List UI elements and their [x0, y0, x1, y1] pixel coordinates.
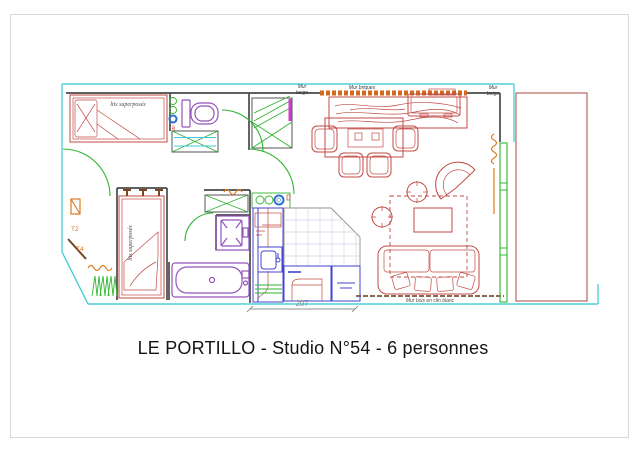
hob-counter: [252, 193, 290, 208]
window-right: [500, 143, 507, 302]
wc: 30: [170, 98, 219, 153]
doors: [63, 110, 294, 241]
radiator-entry: [88, 266, 112, 271]
closet-door-arc: [249, 149, 294, 194]
mur-beige-right-2: beige: [487, 91, 499, 97]
kitchen: [252, 193, 360, 302]
sofa: [378, 246, 479, 294]
pantry-corner: [284, 208, 360, 266]
bench: [329, 97, 467, 128]
bunk-bed-side-label: lits superposés: [128, 225, 134, 261]
bedroom-door-arc: [63, 149, 110, 196]
base-cabinets: [284, 266, 360, 301]
bunk-bed-side: lits superposés: [119, 190, 164, 298]
armchair: [436, 162, 475, 199]
entry-closet: [252, 96, 292, 148]
bathroom: [172, 216, 249, 297]
mur-bois-label: Mur bois en clin blanc: [406, 298, 455, 304]
type-t4-label: T4: [76, 246, 84, 253]
page-title: LE PORTILLO - Studio N°54 - 6 personnes: [0, 338, 626, 359]
coffee-table: [414, 208, 452, 232]
bathtub: [172, 263, 249, 297]
living-area: [371, 89, 479, 294]
vanity-sink: [216, 216, 249, 250]
entry-door: [71, 199, 80, 214]
floorplan-page: lits superposés 30: [0, 0, 640, 452]
kitchen-sink: [258, 247, 282, 272]
entry-area: T2 T4: [68, 199, 117, 296]
stool-1: [406, 181, 428, 203]
dining-area: [312, 97, 467, 177]
toilet-tank: [182, 100, 190, 127]
mur-briques-label: Mur briques: [349, 85, 376, 91]
radiator-right: [492, 134, 497, 214]
balcony-outline: [516, 93, 587, 301]
coat-hooks: [123, 190, 163, 196]
plants: [92, 276, 117, 296]
bathroom-door-arc: [185, 213, 213, 241]
type-t2-label: T2: [71, 226, 79, 233]
bunk-bed-top: lits superposés: [70, 95, 167, 142]
mur-beige-left-2: beige: [296, 90, 308, 96]
dimension-value: 207: [295, 299, 309, 308]
wc-note-label: 30: [171, 125, 176, 131]
floor-plan: lits superposés 30: [0, 0, 640, 452]
bunk-bed-top-label: lits superposés: [110, 102, 146, 108]
hall-closet: [205, 190, 248, 213]
wall-labels: Mur beige Mur briques Mur beige Mur bois…: [296, 84, 499, 304]
dining-chairs: [312, 126, 418, 177]
